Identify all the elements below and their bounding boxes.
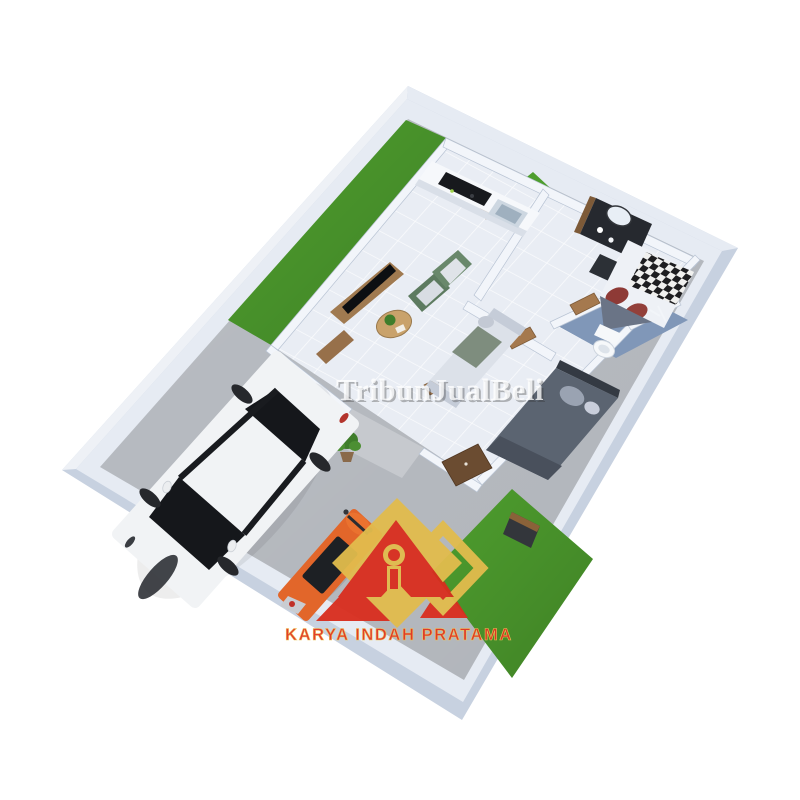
- logo-stem-inner: [390, 569, 398, 589]
- watermark-text: TribunJualBeli: [336, 372, 544, 407]
- company-name-text: KARYA INDAH PRATAMA: [285, 626, 513, 644]
- table-plant: [385, 315, 396, 326]
- stove-indicator-light: [450, 189, 454, 193]
- floorplan-canvas: TribunJualBeli TribunJualBeli KARYA INDA…: [0, 0, 800, 800]
- scooter-mirror-left: [343, 509, 348, 514]
- watermark: TribunJualBeli TribunJualBeli: [336, 372, 546, 409]
- scooter-taillight: [289, 601, 295, 607]
- wardrobe-handle: [464, 462, 467, 465]
- stove-burner: [470, 194, 474, 198]
- plant-leaves-3: [349, 441, 361, 451]
- sofa-pillow: [478, 316, 494, 328]
- vanity-item: [597, 227, 603, 233]
- floorplan-render: TribunJualBeli TribunJualBeli KARYA INDA…: [0, 0, 800, 800]
- logo-head-dot: [388, 549, 400, 561]
- vanity-item-2: [608, 237, 613, 242]
